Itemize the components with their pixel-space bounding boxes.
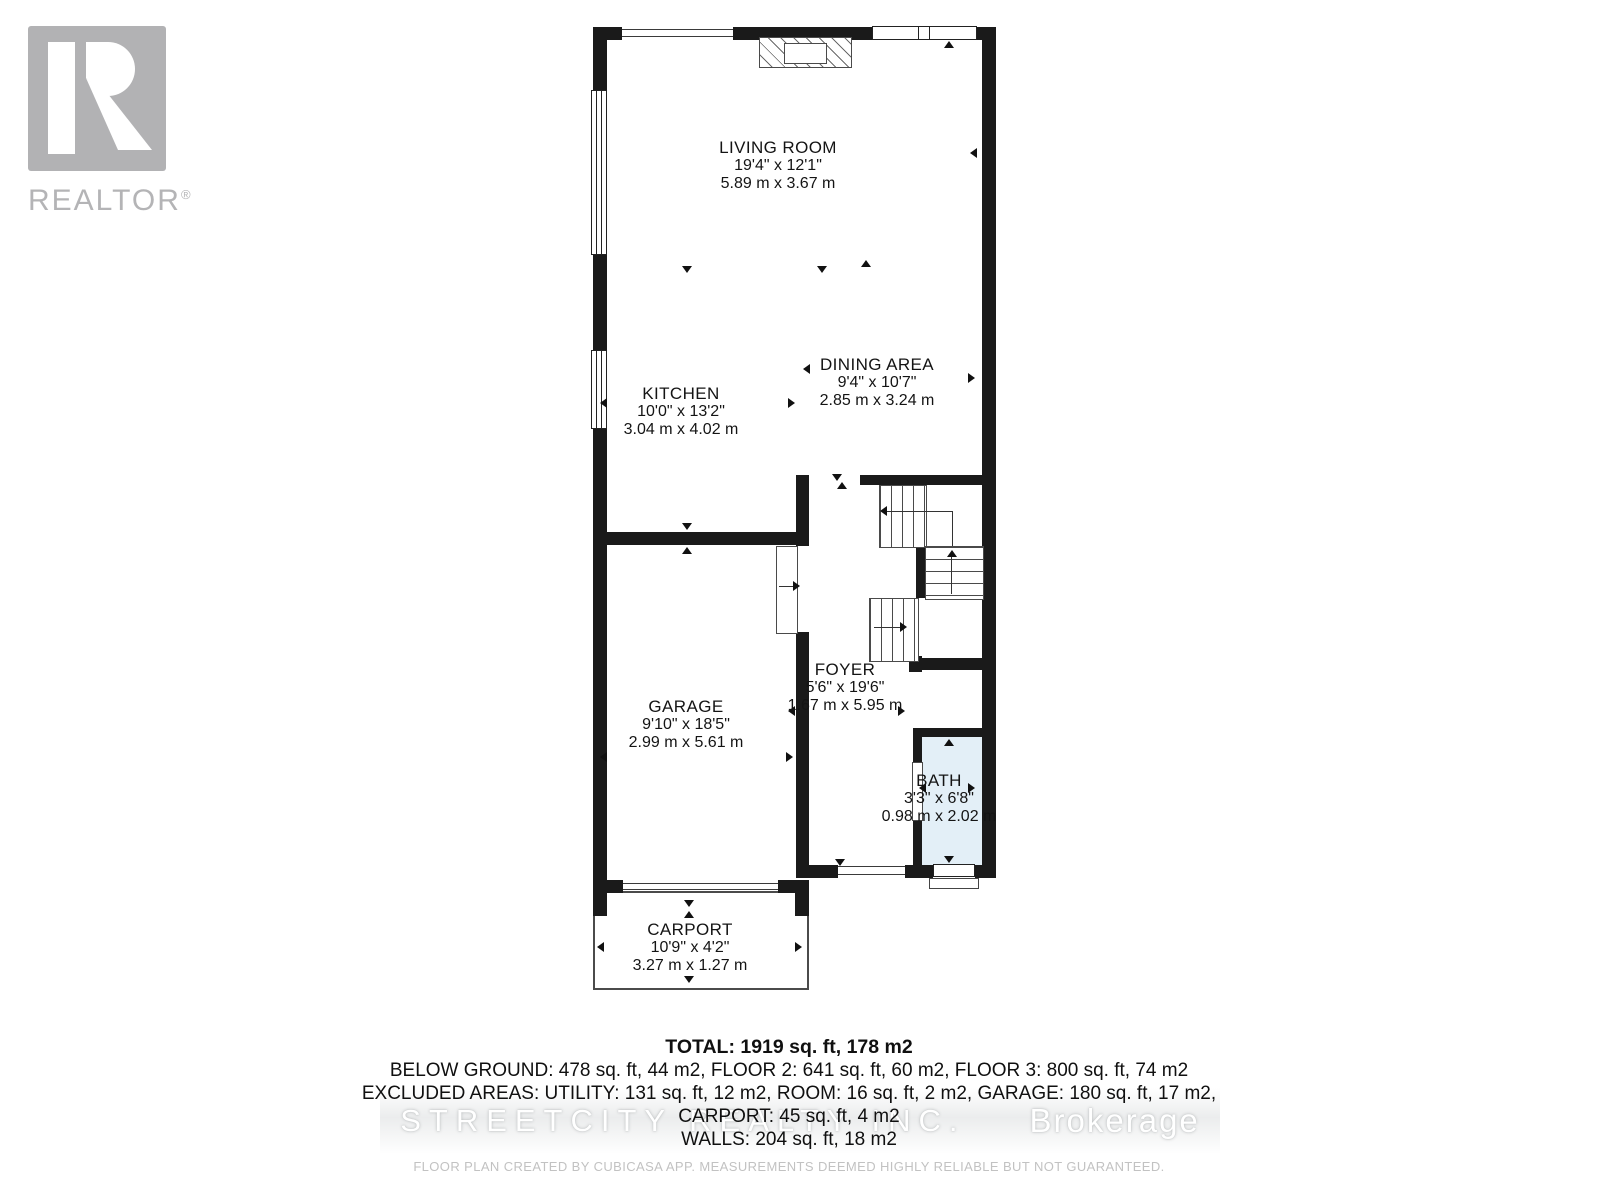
wall [593, 27, 607, 92]
room-name: BATH [882, 772, 997, 790]
floor-plan-page: REALTOR® [0, 0, 1600, 1200]
measure-arrow-icon [684, 900, 694, 907]
measure-arrow-icon [944, 739, 954, 746]
stair-direction-line [951, 557, 952, 594]
measure-arrow-icon [788, 398, 795, 408]
stair-direction-arrow-icon [947, 550, 957, 557]
measure-arrow-icon [682, 523, 692, 530]
stair-flight-lower [869, 598, 919, 662]
room-label-dining-area: DINING AREA 9'4" x 10'7" 2.85 m x 3.24 m [820, 356, 935, 410]
window [591, 350, 607, 429]
excluded-areas: EXCLUDED AREAS: UTILITY: 131 sq. ft, 12 … [0, 1082, 1578, 1105]
room-dims-imperial: 10'9" x 4'2" [633, 939, 748, 957]
room-dims-imperial: 5'6" x 19'6" [788, 679, 903, 697]
room-name: LIVING ROOM [719, 139, 837, 157]
measure-arrow-icon [682, 266, 692, 273]
measure-arrow-icon [861, 260, 871, 267]
measure-arrow-icon [944, 41, 954, 48]
room-label-foyer: FOYER 5'6" x 19'6" 1.67 m x 5.95 m [788, 661, 903, 715]
wall [982, 27, 996, 878]
room-dims-metric: 2.99 m x 5.61 m [629, 734, 744, 752]
total-area: TOTAL: 1919 sq. ft, 178 m2 [0, 1036, 1578, 1059]
measure-arrow-icon [682, 547, 692, 554]
room-label-bath: BATH 3'3" x 6'8" 0.98 m x 2.02 m [882, 772, 997, 826]
wall [905, 865, 933, 878]
wall [593, 880, 607, 916]
measure-arrow-icon [600, 752, 607, 762]
realtor-logo: REALTOR® [28, 26, 218, 218]
window [591, 90, 607, 255]
stair-direction-line [952, 511, 953, 546]
wall [593, 532, 809, 545]
room-dims-imperial: 9'10" x 18'5" [629, 716, 744, 734]
room-label-living-room: LIVING ROOM 19'4" x 12'1" 5.89 m x 3.67 … [719, 139, 837, 193]
wall [796, 475, 809, 546]
measure-arrow-icon [684, 976, 694, 983]
stair-direction-arrow-icon [880, 506, 887, 516]
room-name: CARPORT [633, 921, 748, 939]
stair-direction-arrow-icon [900, 622, 907, 632]
measure-arrow-icon [795, 942, 802, 952]
window-sill [929, 878, 979, 889]
disclaimer: FLOOR PLAN CREATED BY CUBICASA APP. MEAS… [0, 1159, 1578, 1174]
realtor-logo-label: REALTOR® [28, 184, 218, 218]
wall [913, 819, 922, 868]
registered-mark: ® [181, 187, 193, 202]
room-dims-metric: 3.27 m x 1.27 m [633, 957, 748, 975]
room-dims-metric: 2.85 m x 3.24 m [820, 392, 935, 410]
room-name: KITCHEN [624, 385, 739, 403]
door-swing-line [779, 586, 794, 587]
floor-areas: BELOW GROUND: 478 sq. ft, 44 m2, FLOOR 2… [0, 1059, 1578, 1082]
wall [795, 880, 809, 916]
measure-arrow-icon [803, 364, 810, 374]
room-dims-metric: 5.89 m x 3.67 m [719, 175, 837, 193]
measure-arrow-icon [944, 856, 954, 863]
room-label-carport: CARPORT 10'9" x 4'2" 3.27 m x 1.27 m [633, 921, 748, 975]
room-label-kitchen: KITCHEN 10'0" x 13'2" 3.04 m x 4.02 m [624, 385, 739, 439]
measure-arrow-icon [600, 398, 607, 408]
measure-arrow-icon [968, 373, 975, 383]
measure-arrow-icon [970, 148, 977, 158]
wall [913, 728, 922, 763]
room-dims-metric: 3.04 m x 4.02 m [624, 421, 739, 439]
walls-area: WALLS: 204 sq. ft, 18 m2 [0, 1128, 1578, 1151]
room-dims-imperial: 3'3" x 6'8" [882, 790, 997, 808]
wall [913, 728, 983, 737]
window [872, 26, 977, 40]
measure-arrow-icon [817, 266, 827, 273]
measure-arrow-icon [837, 482, 847, 489]
measure-arrow-icon [835, 859, 845, 866]
room-name: GARAGE [629, 698, 744, 716]
stair-direction-line [886, 511, 952, 512]
fireplace-insert [784, 43, 827, 64]
measure-arrow-icon [832, 474, 842, 481]
wall [916, 546, 925, 598]
room-name: FOYER [788, 661, 903, 679]
stair-flight-upper [879, 485, 927, 548]
room-dims-imperial: 19'4" x 12'1" [719, 157, 837, 175]
realtor-wordmark: REALTOR [28, 184, 181, 217]
wall [860, 475, 982, 485]
measure-arrow-icon [684, 911, 694, 918]
wall [593, 427, 607, 893]
wall [916, 658, 983, 670]
wall [593, 253, 607, 352]
bath-window [933, 864, 975, 877]
room-name: DINING AREA [820, 356, 935, 374]
window-opening [622, 29, 733, 37]
room-dims-imperial: 9'4" x 10'7" [820, 374, 935, 392]
wall [975, 865, 996, 878]
room-label-garage: GARAGE 9'10" x 18'5" 2.99 m x 5.61 m [629, 698, 744, 752]
garage-door-opening [622, 883, 779, 890]
area-summary: TOTAL: 1919 sq. ft, 178 m2 BELOW GROUND:… [0, 1036, 1578, 1151]
realtor-logo-icon [28, 26, 166, 171]
stair-direction-line [874, 627, 902, 628]
door-direction-arrow-icon [793, 581, 800, 591]
room-dims-metric: 1.67 m x 5.95 m [788, 697, 903, 715]
carport-area: CARPORT: 45 sq. ft, 4 m2 [0, 1105, 1578, 1128]
room-dims-imperial: 10'0" x 13'2" [624, 403, 739, 421]
wall [796, 865, 838, 878]
entry-opening [837, 866, 905, 875]
room-dims-metric: 0.98 m x 2.02 m [882, 808, 997, 826]
measure-arrow-icon [597, 942, 604, 952]
measure-arrow-icon [786, 752, 793, 762]
